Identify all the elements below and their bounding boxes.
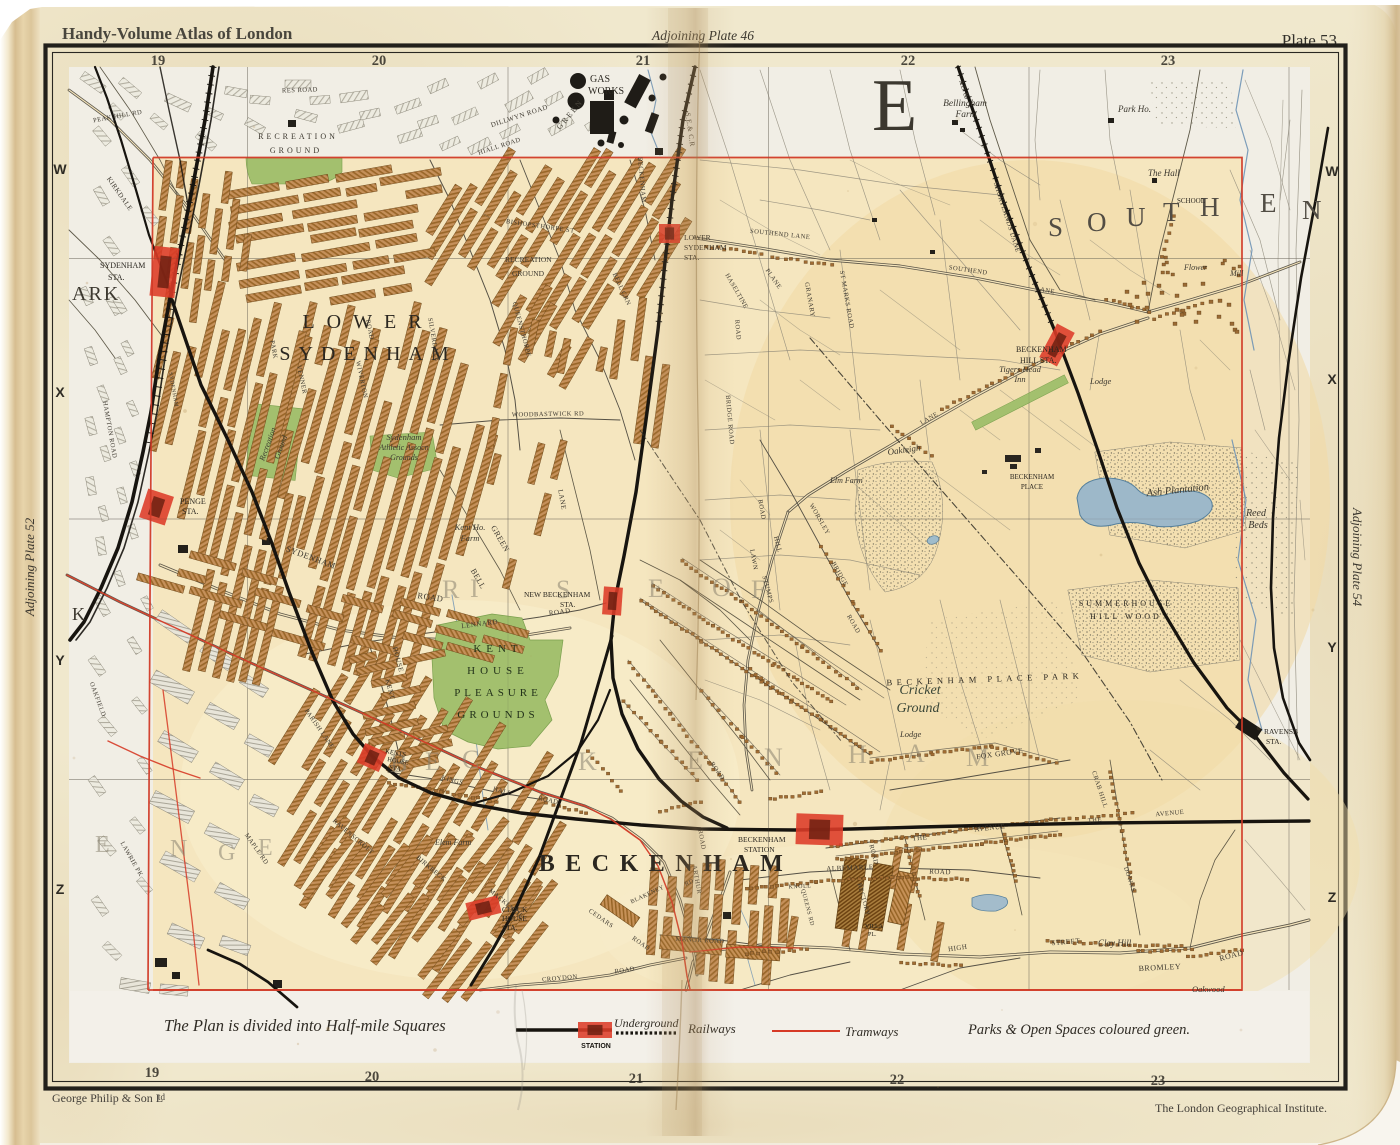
svg-text:Y: Y [55,652,65,668]
svg-text:Oakwood: Oakwood [1192,984,1225,994]
svg-text:E: E [872,65,917,147]
svg-text:E: E [425,747,441,776]
svg-text:td: td [158,1092,166,1102]
svg-text:Elm Farm: Elm Farm [829,476,863,485]
svg-text:G: G [218,840,235,866]
svg-text:E: E [1260,188,1277,218]
svg-text:GROUND: GROUND [512,269,545,278]
svg-text:Farm: Farm [460,533,480,543]
svg-text:GAS: GAS [590,74,610,85]
svg-text:21: 21 [629,1071,644,1087]
svg-text:GROUND: GROUND [270,146,322,155]
svg-text:THE: THE [1088,816,1103,824]
svg-text:Inn: Inn [1013,374,1025,384]
svg-text:Athletic Assocn: Athletic Assocn [378,443,428,452]
svg-text:KENT: KENT [473,643,522,655]
svg-text:VILLA: VILLA [865,924,884,930]
svg-text:WORKS: WORKS [588,86,624,97]
svg-text:K: K [72,604,85,624]
svg-text:N: N [764,743,783,772]
svg-text:Sydenham: Sydenham [387,432,422,442]
svg-text:Grounds: Grounds [390,453,418,462]
svg-text:19: 19 [151,53,166,69]
svg-text:X: X [55,384,65,400]
svg-text:22: 22 [890,1072,905,1088]
svg-text:Reed: Reed [1245,508,1267,519]
svg-text:Lodge: Lodge [899,729,921,739]
svg-text:23: 23 [1161,53,1176,69]
svg-text:E: E [95,832,110,858]
svg-text:PENGE: PENGE [180,497,206,506]
svg-text:SCHOOL: SCHOOL [1177,197,1205,205]
svg-text:Elem Farm: Elem Farm [434,838,471,847]
svg-text:HILL WOOD: HILL WOOD [1090,612,1162,621]
svg-text:ROAD: ROAD [929,868,951,877]
svg-text:Lodge: Lodge [1089,376,1111,386]
svg-text:Park Ho.: Park Ho. [1117,104,1151,114]
svg-text:George Philip & Son L: George Philip & Son L [52,1091,163,1105]
svg-text:Handy-Volume Atlas of London: Handy-Volume Atlas of London [62,24,293,43]
svg-text:RES ROAD: RES ROAD [282,86,318,94]
svg-text:WOODBASTWICK RD: WOODBASTWICK RD [512,410,584,418]
svg-text:Ground: Ground [896,701,940,716]
svg-text:Kent Ho.: Kent Ho. [454,522,486,532]
svg-text:Parks & Open Spaces coloured g: Parks & Open Spaces coloured green. [967,1022,1190,1038]
svg-text:X: X [1327,371,1337,387]
svg-text:BECKENHAM: BECKENHAM [1010,473,1055,481]
svg-text:SYDENHAM: SYDENHAM [100,261,145,270]
svg-text:Adjoining Plate 52: Adjoining Plate 52 [22,517,37,617]
svg-text:Bellingham: Bellingham [943,99,987,109]
svg-text:ALBEMARLE: ALBEMARLE [826,863,874,873]
svg-text:Z: Z [1328,889,1337,905]
svg-text:K: K [578,747,597,776]
svg-text:C: C [462,745,479,774]
svg-text:Tramways: Tramways [845,1024,898,1039]
svg-text:STA.: STA. [1266,737,1282,746]
svg-text:STA.: STA. [502,923,518,932]
svg-text:Z: Z [56,881,65,897]
svg-text:PLACE: PLACE [1021,483,1043,491]
svg-text:Mill: Mill [1229,269,1244,278]
svg-text:H: H [848,740,867,769]
svg-text:RAVENSB: RAVENSB [1264,727,1298,736]
svg-text:PLEASURE: PLEASURE [454,687,542,699]
svg-text:Adjoining Plate 54: Adjoining Plate 54 [1350,507,1365,607]
svg-text:N: N [170,836,187,862]
svg-text:22: 22 [901,53,916,69]
svg-text:S: S [1048,212,1063,242]
svg-text:Y: Y [1327,639,1337,655]
svg-text:BECKENHAM: BECKENHAM [738,835,786,844]
svg-text:U: U [1126,202,1146,232]
svg-text:GROUNDS: GROUNDS [457,709,538,721]
svg-text:W: W [53,161,67,177]
svg-text:NEW BECKENHAM: NEW BECKENHAM [524,590,591,599]
svg-text:R: R [442,575,460,604]
svg-text:O: O [1087,207,1107,237]
svg-text:RECREATION: RECREATION [258,132,338,141]
svg-text:PL.: PL. [868,932,877,938]
svg-text:STATION: STATION [581,1043,611,1050]
svg-text:THE: THE [912,833,928,843]
svg-text:BECKENHAM: BECKENHAM [1016,345,1067,354]
svg-text:Flower: Flower [1183,263,1208,272]
svg-text:23: 23 [1151,1073,1166,1089]
svg-text:Clay Hill: Clay Hill [1098,938,1132,948]
svg-text:20: 20 [365,1069,380,1085]
svg-text:The Hall: The Hall [1148,168,1180,178]
svg-text:SYDENHAM: SYDENHAM [279,343,456,365]
svg-text:STATION: STATION [744,845,775,854]
svg-text:N: N [1302,195,1322,225]
svg-text:Beds: Beds [1248,520,1268,531]
svg-text:RECREATION: RECREATION [505,255,552,264]
svg-text:W: W [1325,163,1339,179]
svg-text:20: 20 [372,53,387,69]
svg-text:ARK: ARK [72,283,120,305]
svg-text:The Plan is divided into Half-: The Plan is divided into Half-mile Squar… [164,1016,446,1035]
svg-text:SUMMERHOUSE: SUMMERHOUSE [1079,599,1173,608]
svg-text:STA.: STA. [108,273,124,282]
svg-text:The London Geographical Instit: The London Geographical Institute. [1155,1101,1327,1115]
svg-text:19: 19 [145,1065,160,1081]
svg-text:Tigers Head: Tigers Head [999,364,1042,374]
svg-text:A: A [906,739,925,768]
svg-text:STA.: STA. [182,507,198,516]
svg-text:HOUSE: HOUSE [467,665,529,677]
